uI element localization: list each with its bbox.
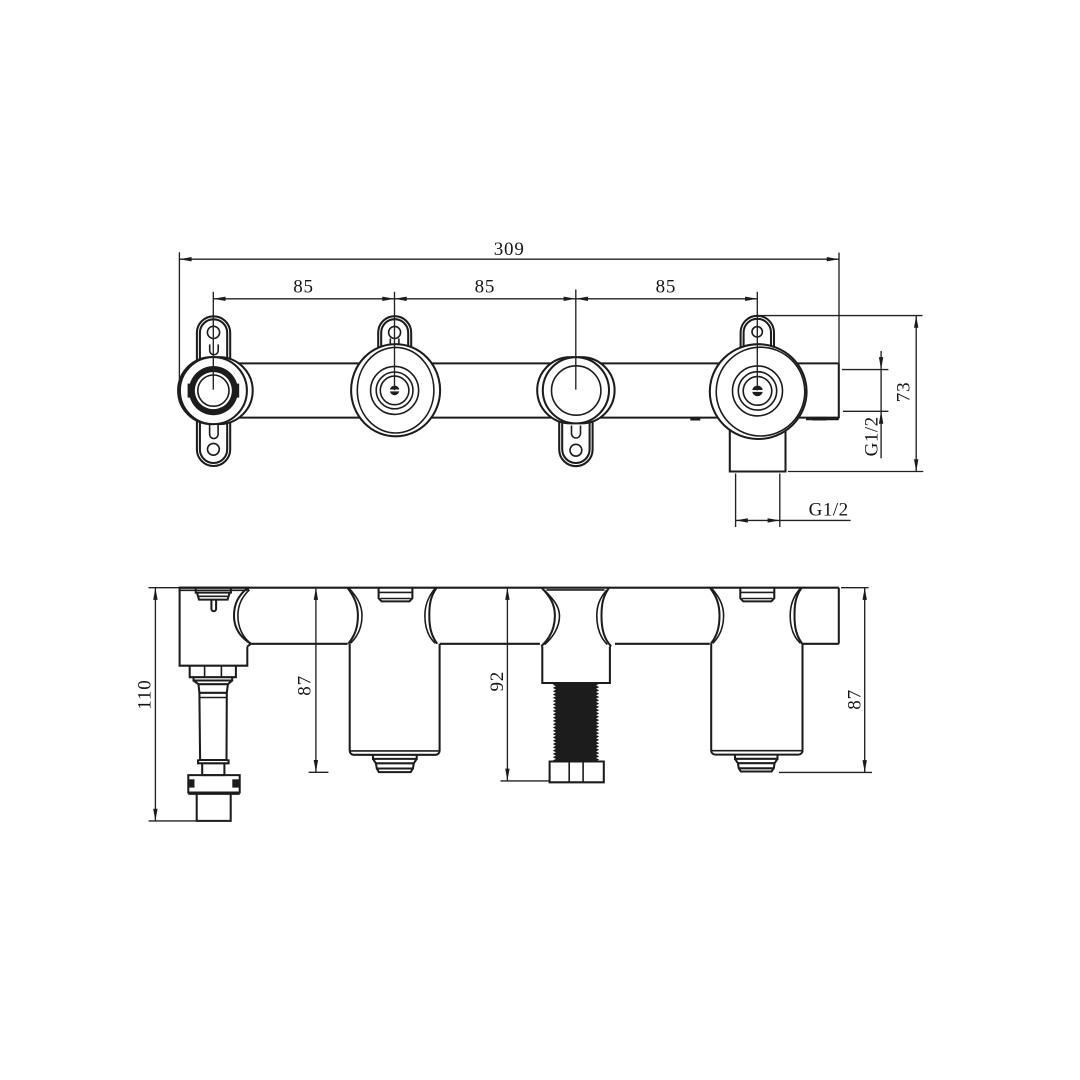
svg-text:73: 73 [894, 382, 915, 403]
svg-text:85: 85 [293, 277, 314, 298]
svg-text:G1/2: G1/2 [809, 499, 849, 520]
svg-text:85: 85 [656, 277, 677, 298]
svg-text:309: 309 [494, 239, 525, 260]
svg-text:87: 87 [294, 675, 315, 696]
svg-text:110: 110 [135, 679, 156, 709]
svg-text:G1/2: G1/2 [862, 416, 883, 456]
svg-text:92: 92 [487, 671, 508, 692]
svg-text:85: 85 [475, 277, 496, 298]
svg-text:87: 87 [845, 689, 866, 710]
